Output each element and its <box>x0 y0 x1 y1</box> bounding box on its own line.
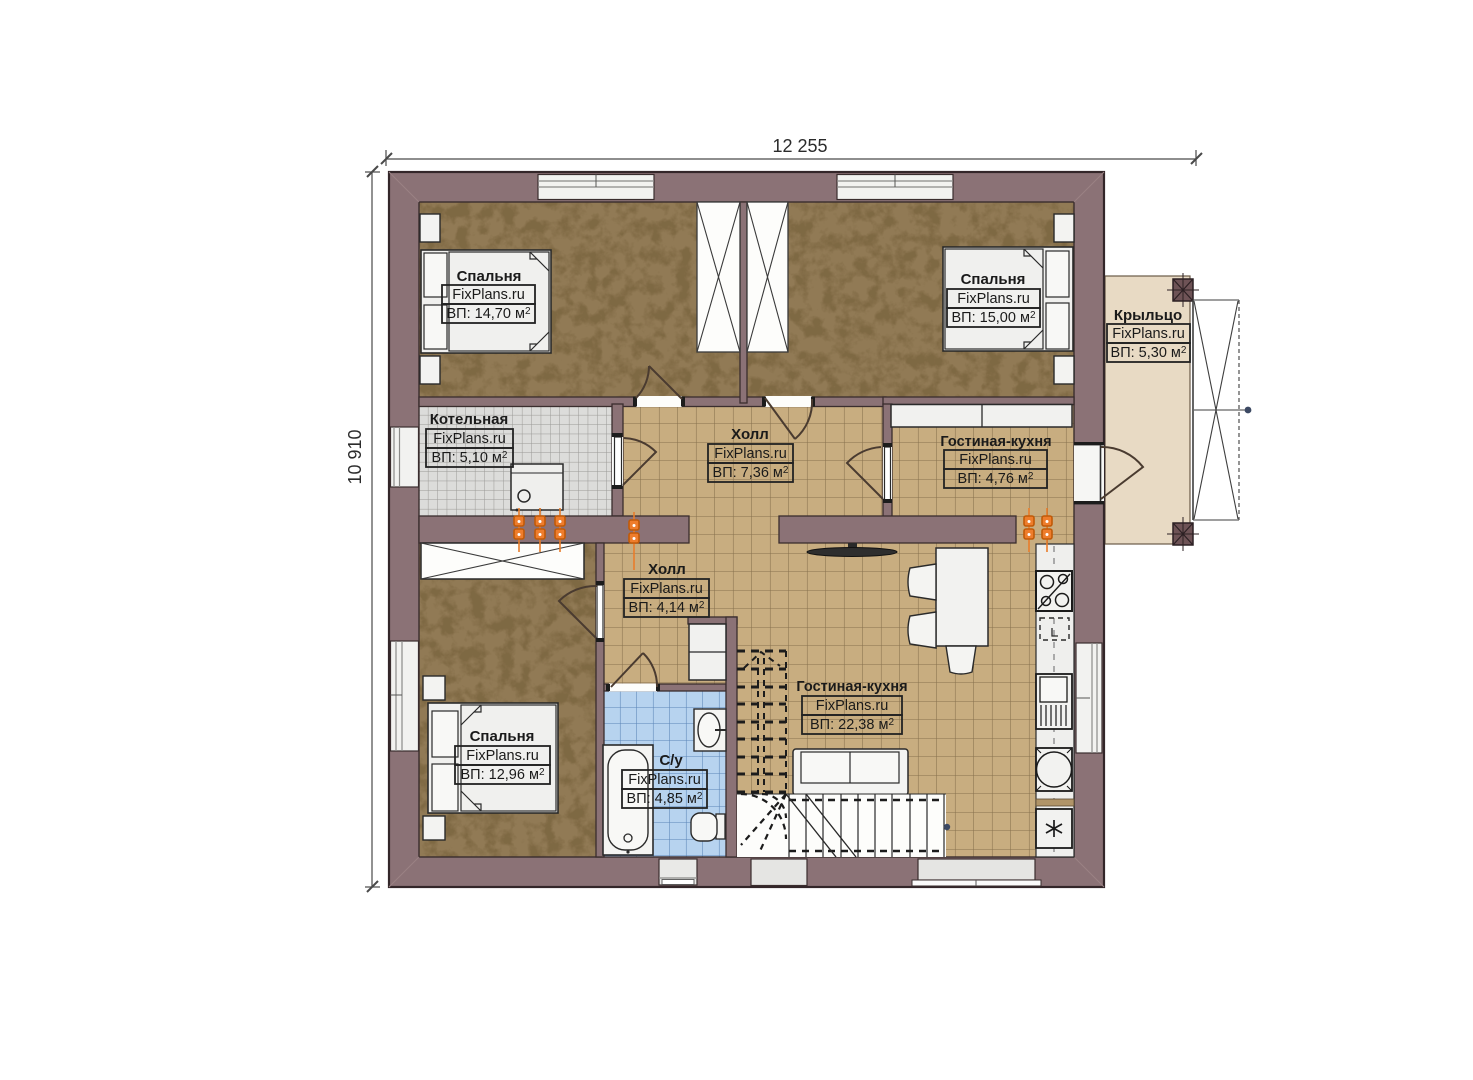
svg-text:Гостиная-кухня: Гостиная-кухня <box>940 434 1051 450</box>
svg-text:FixPlans.ru: FixPlans.ru <box>466 748 539 764</box>
svg-text:FixPlans.ru: FixPlans.ru <box>1112 326 1185 342</box>
svg-text:FixPlans.ru: FixPlans.ru <box>433 431 506 447</box>
svg-text:12 255: 12 255 <box>772 136 827 156</box>
svg-text:Холл: Холл <box>648 561 686 578</box>
svg-text:Холл: Холл <box>731 426 769 443</box>
svg-text:FixPlans.ru: FixPlans.ru <box>959 452 1032 468</box>
svg-text:Крыльцо: Крыльцо <box>1114 307 1182 324</box>
svg-text:С/у: С/у <box>659 752 683 769</box>
svg-text:FixPlans.ru: FixPlans.ru <box>630 581 703 597</box>
svg-text:ВП: 22,38 м2: ВП: 22,38 м2 <box>810 717 894 733</box>
svg-text:ВП: 4,14 м2: ВП: 4,14 м2 <box>629 600 705 616</box>
svg-text:Спальня: Спальня <box>457 268 522 285</box>
svg-text:Котельная: Котельная <box>430 411 509 428</box>
svg-text:FixPlans.ru: FixPlans.ru <box>957 291 1030 307</box>
svg-text:ВП: 4,85 м2: ВП: 4,85 м2 <box>627 791 703 807</box>
svg-text:ВП: 7,36 м2: ВП: 7,36 м2 <box>713 465 789 481</box>
svg-text:Спальня: Спальня <box>961 271 1026 288</box>
svg-text:FixPlans.ru: FixPlans.ru <box>452 287 525 303</box>
svg-text:FixPlans.ru: FixPlans.ru <box>816 698 889 714</box>
svg-text:Гостиная-кухня: Гостиная-кухня <box>796 679 907 695</box>
svg-text:FixPlans.ru: FixPlans.ru <box>628 772 701 788</box>
svg-text:ВП: 12,96 м2: ВП: 12,96 м2 <box>461 767 545 783</box>
svg-text:FixPlans.ru: FixPlans.ru <box>714 446 787 462</box>
svg-text:ВП: 5,10 м2: ВП: 5,10 м2 <box>432 450 508 466</box>
svg-text:ВП: 14,70 м2: ВП: 14,70 м2 <box>447 306 531 322</box>
svg-text:10 910: 10 910 <box>345 429 365 484</box>
svg-text:ВП: 5,30 м2: ВП: 5,30 м2 <box>1111 345 1187 361</box>
svg-text:ВП: 15,00 м2: ВП: 15,00 м2 <box>952 310 1036 326</box>
svg-text:ВП: 4,76 м2: ВП: 4,76 м2 <box>958 471 1034 487</box>
svg-text:Спальня: Спальня <box>470 728 535 745</box>
